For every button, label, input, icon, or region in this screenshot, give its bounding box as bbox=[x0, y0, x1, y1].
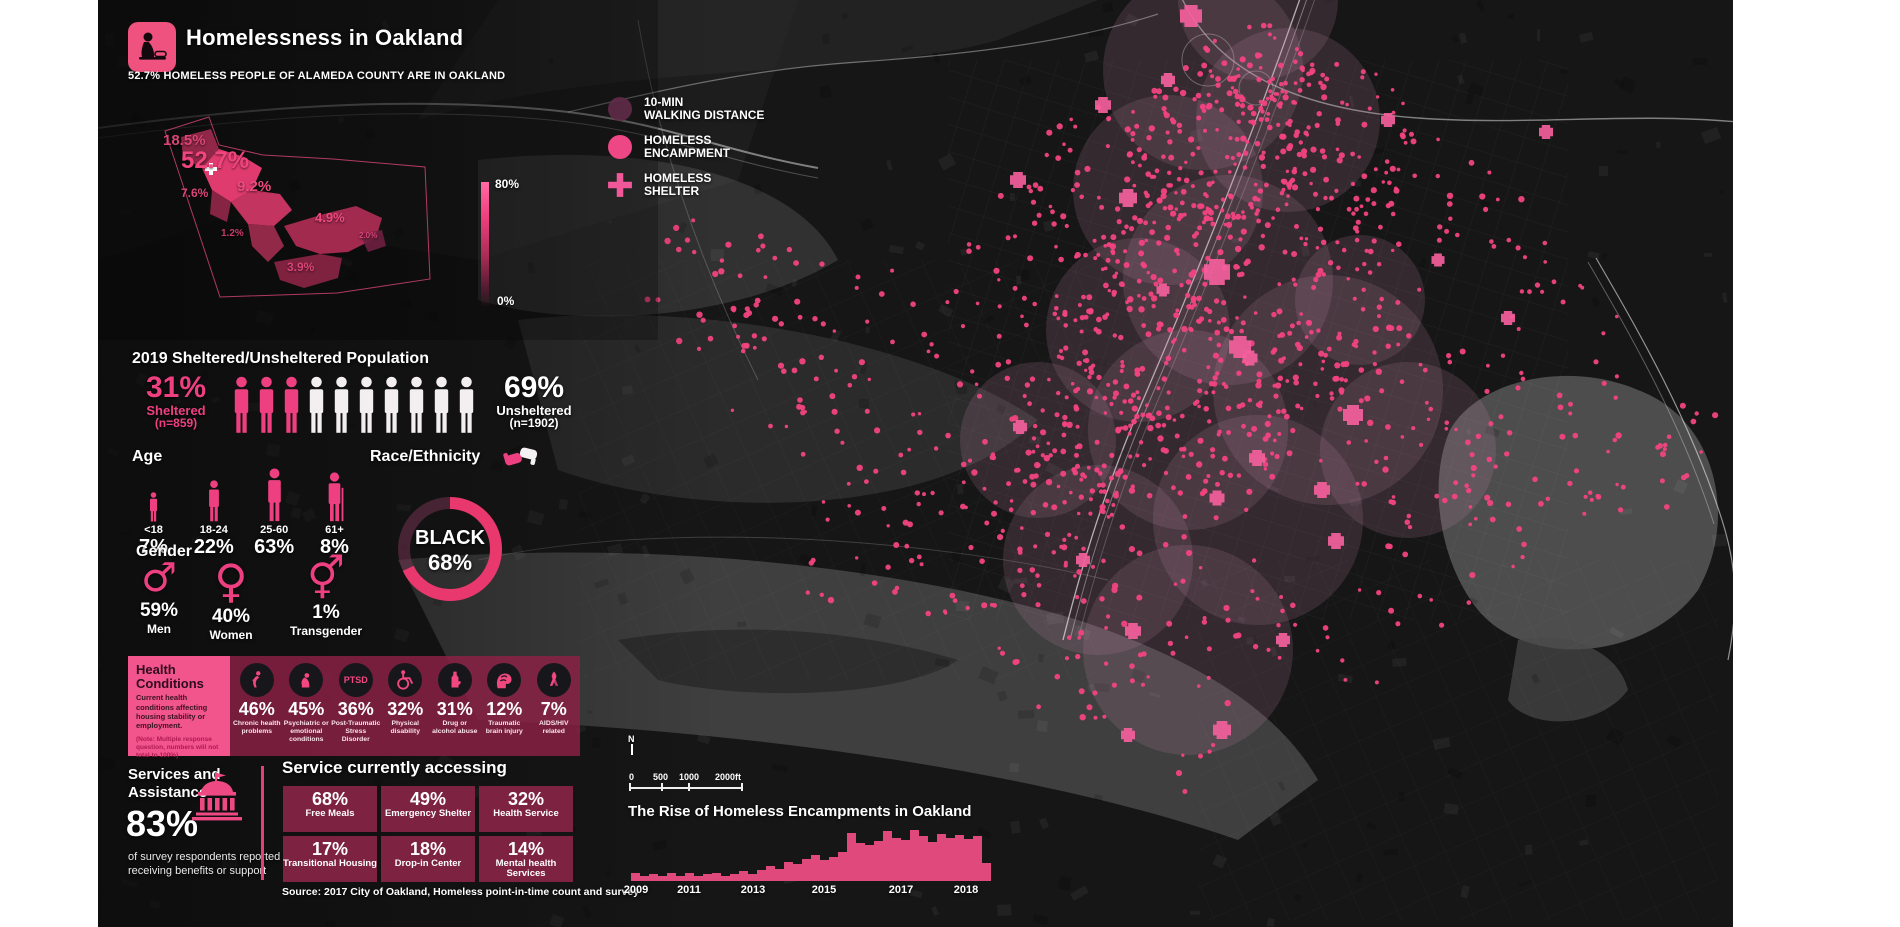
encampment-dot bbox=[1128, 454, 1132, 458]
encampment-dot bbox=[1267, 23, 1272, 28]
encampment-dot bbox=[1355, 267, 1359, 271]
encampment-bar bbox=[739, 871, 748, 881]
encampment-dot bbox=[1207, 419, 1211, 423]
encampment-dot bbox=[1391, 249, 1394, 252]
encampment-dot bbox=[1295, 47, 1299, 51]
encampment-dot bbox=[1384, 171, 1388, 175]
encampment-dot bbox=[1079, 195, 1084, 200]
encampment-dot bbox=[1074, 182, 1080, 188]
encampment-dot bbox=[1135, 390, 1139, 394]
encampment-dot bbox=[1288, 119, 1293, 124]
encampment-dot bbox=[1445, 420, 1450, 425]
encampment-dot bbox=[1228, 235, 1233, 240]
legend-item: HOMELESSSHELTER bbox=[606, 172, 764, 199]
encampment-dot bbox=[1131, 138, 1135, 142]
encampment-dot bbox=[1323, 177, 1329, 183]
encampment-dot bbox=[1290, 428, 1295, 433]
gender-pct: 1% bbox=[270, 602, 382, 624]
encampment-dot bbox=[1211, 390, 1215, 394]
encampment-dot bbox=[1233, 163, 1236, 166]
encampment-dot bbox=[1338, 332, 1342, 336]
encampment-dot bbox=[1276, 123, 1280, 127]
encampment-dot bbox=[1134, 124, 1139, 129]
encampment-dot bbox=[1151, 88, 1157, 94]
encampment-dot bbox=[1128, 432, 1132, 436]
encampment-dot bbox=[1138, 250, 1144, 256]
encampment-dot bbox=[1273, 439, 1277, 443]
encampment-dot bbox=[1110, 513, 1114, 517]
encampment-dot bbox=[1077, 361, 1082, 366]
encampment-dot bbox=[962, 480, 966, 484]
encampment-bar bbox=[955, 835, 964, 881]
encampment-dot bbox=[1215, 128, 1219, 132]
service-grid: 68%Free Meals49%Emergency Shelter32%Heal… bbox=[283, 786, 573, 882]
encampment-dot bbox=[1087, 308, 1093, 314]
encampment-dot bbox=[1127, 306, 1133, 312]
encampment-dot bbox=[800, 410, 805, 415]
encampment-dot bbox=[1315, 123, 1319, 127]
encampment-dot bbox=[1180, 414, 1185, 419]
encampment-dot bbox=[1320, 148, 1326, 154]
encampment-dot bbox=[1303, 242, 1307, 246]
encampment-dot bbox=[1206, 474, 1210, 478]
encampment-dot bbox=[1087, 466, 1091, 470]
encampment-dot bbox=[1191, 298, 1196, 303]
encampment-dot bbox=[1353, 225, 1359, 231]
encampment-dot bbox=[1361, 69, 1366, 74]
encampment-dot bbox=[1094, 716, 1098, 720]
encampment-dot bbox=[1060, 471, 1066, 477]
encampment-dot bbox=[1282, 179, 1288, 185]
encampment-dot bbox=[1088, 511, 1092, 515]
encampment-dot bbox=[1093, 256, 1097, 260]
encampment-dot bbox=[1080, 714, 1086, 720]
encampment-dot bbox=[957, 381, 963, 387]
encampment-dot bbox=[1118, 468, 1124, 474]
encampment-dot bbox=[1448, 217, 1452, 221]
encampment-dot bbox=[1191, 203, 1196, 208]
encampment-dot bbox=[1411, 426, 1415, 430]
encampment-dot bbox=[1257, 379, 1262, 384]
encampment-dot bbox=[1068, 148, 1073, 153]
encampment-dot bbox=[1233, 633, 1239, 639]
encampment-dot bbox=[1191, 184, 1195, 188]
encampment-dot bbox=[1225, 618, 1230, 623]
scale-min-label: 0% bbox=[497, 294, 514, 308]
encampment-dot bbox=[1350, 152, 1355, 157]
encampment-dot bbox=[1276, 623, 1280, 627]
encampment-dot bbox=[1322, 272, 1326, 276]
encampment-dot bbox=[1276, 207, 1281, 212]
encampment-dot bbox=[1321, 94, 1327, 100]
encampment-dot bbox=[1113, 390, 1119, 396]
encampment-dot bbox=[1218, 358, 1223, 363]
encampment-dot bbox=[1469, 572, 1475, 578]
gender-group: ⚥1%Transgender bbox=[270, 558, 382, 642]
encampment-bar bbox=[811, 855, 820, 882]
encampment-dot bbox=[1261, 164, 1266, 169]
encampment-dot bbox=[855, 556, 858, 559]
encampment-dot bbox=[1214, 205, 1219, 210]
encampment-dot bbox=[1141, 323, 1146, 328]
encampment-dot bbox=[1409, 132, 1414, 137]
encampment-dot bbox=[1122, 399, 1127, 404]
encampment-dot bbox=[1193, 401, 1198, 406]
encampment-dot bbox=[1215, 76, 1221, 82]
encampment-dot bbox=[1064, 561, 1068, 565]
encampment-dot bbox=[1062, 538, 1066, 542]
encampment-dot bbox=[1180, 579, 1185, 584]
encampment-dot bbox=[1152, 221, 1156, 225]
health-item: 12%Traumatic brain injury bbox=[480, 663, 530, 743]
encampment-dot bbox=[1190, 152, 1195, 157]
population-person-icon bbox=[330, 374, 353, 441]
encampment-bar bbox=[757, 870, 766, 881]
encampment-dot bbox=[793, 260, 799, 266]
encampment-dot bbox=[1027, 185, 1032, 190]
encampment-dot bbox=[873, 469, 878, 474]
encampment-dot bbox=[1203, 616, 1207, 620]
encampment-dot bbox=[1142, 296, 1147, 301]
encampment-dot bbox=[1030, 376, 1035, 381]
encampment-dot bbox=[1170, 117, 1175, 122]
service-box: 14%Mental health Services bbox=[479, 836, 573, 882]
encampment-dot bbox=[1309, 71, 1313, 75]
encampment-dot bbox=[852, 374, 857, 379]
encampment-dot bbox=[1487, 500, 1493, 506]
encampment-dot bbox=[1159, 322, 1164, 327]
encampment-dot bbox=[1020, 583, 1025, 588]
encampment-dot bbox=[1265, 117, 1270, 122]
encampment-dot bbox=[1347, 277, 1350, 280]
encampment-dot bbox=[1368, 249, 1374, 255]
service-pct: 17% bbox=[283, 840, 377, 859]
scale-label: 500 bbox=[653, 772, 668, 782]
encampment-dot bbox=[1163, 111, 1167, 115]
encampment-dot bbox=[1108, 289, 1111, 292]
encampment-dot bbox=[1055, 294, 1059, 298]
encampment-dot bbox=[1298, 51, 1303, 56]
encampment-dot bbox=[1132, 184, 1136, 188]
encampment-dot bbox=[1062, 433, 1067, 438]
encampment-dot bbox=[1033, 473, 1038, 478]
encampment-dot bbox=[1436, 138, 1440, 142]
building-block bbox=[819, 85, 832, 99]
encampment-dot bbox=[1086, 294, 1092, 300]
population-person-icon bbox=[355, 374, 378, 441]
encampment-bar bbox=[685, 873, 694, 881]
encampment-dot bbox=[1396, 241, 1402, 247]
encampment-dot bbox=[1074, 453, 1079, 458]
encampment-dot bbox=[976, 302, 980, 306]
encampment-dot bbox=[820, 593, 824, 597]
encampment-bar bbox=[910, 830, 919, 881]
encampment-dot bbox=[1015, 659, 1020, 664]
encampment-dot bbox=[1283, 81, 1288, 86]
encampment-dot bbox=[1299, 237, 1303, 241]
encampment-dot bbox=[834, 429, 839, 434]
health-item: 32%Physical disability bbox=[381, 663, 431, 743]
encampment-dot bbox=[1078, 636, 1082, 640]
encampment-dot bbox=[997, 278, 1000, 281]
encampment-dot bbox=[1336, 266, 1341, 271]
encampment-dot bbox=[1574, 468, 1579, 473]
encampment-dot bbox=[779, 321, 784, 326]
encampment-dot bbox=[1322, 360, 1326, 364]
health-label: Drug or alcohol abuse bbox=[430, 720, 480, 736]
ptsd-icon: PTSD bbox=[339, 663, 373, 697]
encampment-dot bbox=[1172, 269, 1177, 274]
encampment-dot bbox=[1211, 743, 1215, 747]
encampment-dot bbox=[814, 376, 819, 381]
gender-pct: 59% bbox=[126, 600, 192, 622]
encampment-dot bbox=[1208, 337, 1212, 341]
encampment-dot bbox=[1425, 401, 1429, 405]
encampment-dot bbox=[1279, 82, 1283, 86]
encampment-dot bbox=[1197, 405, 1201, 409]
encampment-dot bbox=[1163, 542, 1169, 548]
encampment-dot bbox=[1460, 349, 1466, 355]
person-icon bbox=[455, 374, 478, 436]
encampment-dot bbox=[1329, 196, 1333, 200]
encampment-dot bbox=[1177, 129, 1182, 134]
encampment-dot bbox=[1084, 358, 1089, 363]
encampment-dot bbox=[1083, 475, 1087, 479]
encampment-dot bbox=[1621, 485, 1626, 490]
building-block bbox=[1399, 792, 1405, 801]
encampment-dot bbox=[1392, 495, 1396, 499]
age-person-icon bbox=[126, 464, 181, 522]
scale-tick bbox=[688, 783, 690, 791]
encampment-bar bbox=[847, 833, 856, 881]
scale-tick bbox=[741, 783, 743, 791]
encampment-dot bbox=[1173, 87, 1178, 92]
encampment-dot bbox=[1106, 614, 1110, 618]
service-box: 49%Emergency Shelter bbox=[381, 786, 475, 832]
building-block bbox=[1656, 142, 1661, 148]
encampment-dot bbox=[1109, 476, 1114, 481]
encampment-dot bbox=[1176, 309, 1180, 313]
encampment-dot bbox=[1248, 202, 1253, 207]
encampment-dot bbox=[1298, 362, 1302, 366]
health-pct: 31% bbox=[430, 700, 480, 718]
scale-label: 0 bbox=[629, 772, 634, 782]
encampment-dot bbox=[1207, 181, 1213, 187]
encampment-dot bbox=[930, 491, 934, 495]
encampment-dot bbox=[1181, 189, 1187, 195]
encampment-dot bbox=[1182, 789, 1187, 794]
encampment-dot bbox=[1359, 367, 1365, 373]
encampment-dot bbox=[1178, 166, 1182, 170]
encampment-dot bbox=[797, 397, 803, 403]
encampment-dot bbox=[1212, 375, 1217, 380]
encampment-dot bbox=[1680, 403, 1686, 409]
encampment-dot bbox=[1129, 546, 1135, 552]
encampment-dot bbox=[1663, 447, 1667, 451]
encampment-dot bbox=[1146, 203, 1151, 208]
encampment-dot bbox=[1196, 296, 1202, 302]
building-block bbox=[1537, 29, 1540, 41]
encampment-dot bbox=[1069, 491, 1073, 495]
encampment-dot bbox=[950, 593, 956, 599]
encampment-dot bbox=[1032, 436, 1036, 440]
encampment-dot bbox=[1330, 396, 1335, 401]
encampment-dot bbox=[1065, 224, 1069, 228]
building-block bbox=[997, 904, 1012, 916]
encampment-dot bbox=[1189, 452, 1194, 457]
encampment-dot bbox=[1167, 390, 1171, 394]
encampment-dot bbox=[1429, 598, 1433, 602]
encampment-dot bbox=[1040, 429, 1046, 435]
encampment-dot bbox=[1319, 459, 1323, 463]
population-person-icon bbox=[455, 374, 478, 441]
encampment-dot bbox=[1065, 656, 1069, 660]
encampment-dot bbox=[1175, 434, 1180, 439]
encampment-dot bbox=[1171, 485, 1176, 490]
encampment-dot bbox=[1271, 312, 1276, 317]
encampment-dot bbox=[1596, 494, 1600, 498]
encampment-dot bbox=[1095, 396, 1099, 400]
encampment-dot bbox=[1243, 295, 1246, 298]
encampment-dot bbox=[1695, 411, 1699, 415]
encampment-dot bbox=[1202, 282, 1207, 287]
encampment-dot bbox=[1052, 448, 1057, 453]
encampment-dot bbox=[1104, 661, 1108, 665]
encampment-dot bbox=[1231, 156, 1235, 160]
encampment-dot bbox=[1277, 282, 1281, 286]
encampment-dot bbox=[1196, 116, 1201, 121]
encampment-dot bbox=[1358, 588, 1361, 591]
encampment-dot bbox=[977, 394, 982, 399]
encampment-dot bbox=[1323, 196, 1327, 200]
encampment-dot bbox=[1259, 244, 1265, 250]
encampment-dot bbox=[1161, 154, 1166, 159]
encampment-dot bbox=[1364, 439, 1368, 443]
person-icon bbox=[305, 374, 328, 436]
encampment-dot bbox=[1184, 161, 1187, 164]
encampment-dot bbox=[1047, 442, 1051, 446]
gender-group: ♂59%Men bbox=[126, 558, 192, 642]
walking-distance-circle bbox=[1320, 362, 1496, 538]
encampment-dot bbox=[1059, 349, 1063, 353]
encampment-dot bbox=[917, 555, 922, 560]
encampment-dot bbox=[983, 487, 987, 491]
encampment-dot bbox=[995, 362, 1001, 368]
age-person-icon bbox=[247, 464, 302, 522]
encampment-dot bbox=[1582, 512, 1586, 516]
encampment-dot bbox=[798, 315, 803, 320]
encampment-dot bbox=[826, 518, 830, 522]
encampment-dot bbox=[1465, 439, 1471, 445]
building-block bbox=[1190, 911, 1200, 915]
encampment-dot bbox=[859, 359, 865, 365]
encampment-dot bbox=[1106, 258, 1111, 263]
encampment-dot bbox=[1264, 467, 1267, 470]
encampment-dot bbox=[1071, 467, 1076, 472]
encampment-dot bbox=[1226, 406, 1232, 412]
encampment-dot bbox=[1367, 420, 1373, 426]
encampment-dot bbox=[1391, 500, 1396, 505]
encampment-dot bbox=[1268, 32, 1272, 36]
encampment-dot bbox=[1385, 424, 1391, 430]
race-donut-chart: BLACK 68% bbox=[391, 490, 509, 608]
encampment-dot bbox=[998, 193, 1004, 199]
encampment-dot bbox=[1102, 463, 1107, 468]
encampment-dot bbox=[1243, 151, 1248, 156]
population-person-icon bbox=[430, 374, 453, 441]
encampment-dot bbox=[1241, 320, 1246, 325]
encampment-dot bbox=[1277, 308, 1283, 314]
encampment-dot bbox=[927, 350, 931, 354]
encampment-dot bbox=[1220, 470, 1225, 475]
shelter-cross-icon bbox=[606, 172, 634, 198]
health-pct: 12% bbox=[480, 700, 530, 718]
encampment-dot bbox=[1660, 478, 1665, 483]
health-conditions-card: Health Conditions Current health conditi… bbox=[128, 656, 230, 756]
building-block bbox=[1010, 763, 1019, 772]
encampment-dot bbox=[760, 243, 765, 248]
health-item: 31%Drug or alcohol abuse bbox=[430, 663, 480, 743]
encampment-dot bbox=[1521, 542, 1527, 548]
unsheltered-stat: 69% Unsheltered (n=1902) bbox=[482, 372, 586, 430]
encampment-dot bbox=[1588, 490, 1593, 495]
encampment-dot bbox=[1207, 646, 1212, 651]
encampment-dot bbox=[1168, 641, 1173, 646]
building-block bbox=[1058, 876, 1072, 891]
encampment-dot bbox=[1100, 504, 1106, 510]
encampment-dot bbox=[1013, 286, 1018, 291]
encampment-dot bbox=[1293, 375, 1299, 381]
encampment-dot bbox=[975, 383, 979, 387]
gender-label: Men bbox=[126, 622, 192, 636]
encampment-dot bbox=[1295, 342, 1301, 348]
encampment-dot bbox=[1165, 225, 1171, 231]
encampment-dot bbox=[1104, 244, 1108, 248]
service-box: 68%Free Meals bbox=[283, 786, 377, 832]
encampment-dot bbox=[1062, 142, 1066, 146]
encampment-dot bbox=[1124, 224, 1129, 229]
health-note: (Note: Multiple response question, numbe… bbox=[136, 736, 222, 760]
encampment-dot bbox=[1516, 526, 1522, 532]
encampment-dot bbox=[847, 504, 851, 508]
encampment-dot bbox=[1036, 444, 1040, 448]
encampment-dot bbox=[1402, 552, 1408, 558]
encampment-dot bbox=[1145, 171, 1151, 177]
encampment-dot bbox=[1699, 450, 1703, 454]
encampment-dot bbox=[1215, 482, 1220, 487]
encampment-dot bbox=[1471, 473, 1475, 477]
encampment-dot bbox=[1166, 621, 1172, 627]
encampment-dot bbox=[1171, 651, 1176, 656]
encampment-dot bbox=[1164, 471, 1168, 475]
encampment-dot bbox=[1479, 193, 1485, 199]
encampment-dot bbox=[1189, 272, 1195, 278]
health-desc: Current health conditions affecting hous… bbox=[136, 693, 222, 731]
encampment-dot bbox=[1147, 493, 1153, 499]
encampment-dot bbox=[1520, 289, 1524, 293]
encampment-dot bbox=[1292, 184, 1298, 190]
encampment-dot bbox=[1166, 414, 1172, 420]
encampment-dot bbox=[1484, 389, 1489, 394]
encampment-dot bbox=[1279, 595, 1283, 599]
encampment-dot bbox=[945, 300, 949, 304]
encampment-dot bbox=[1347, 440, 1352, 445]
encampment-dot bbox=[1115, 259, 1120, 264]
encampment-dot bbox=[1217, 249, 1223, 255]
encampment-dot bbox=[1507, 238, 1512, 243]
encampment-dot bbox=[1518, 196, 1524, 202]
health-item: 46%Chronic health problems bbox=[232, 663, 282, 743]
